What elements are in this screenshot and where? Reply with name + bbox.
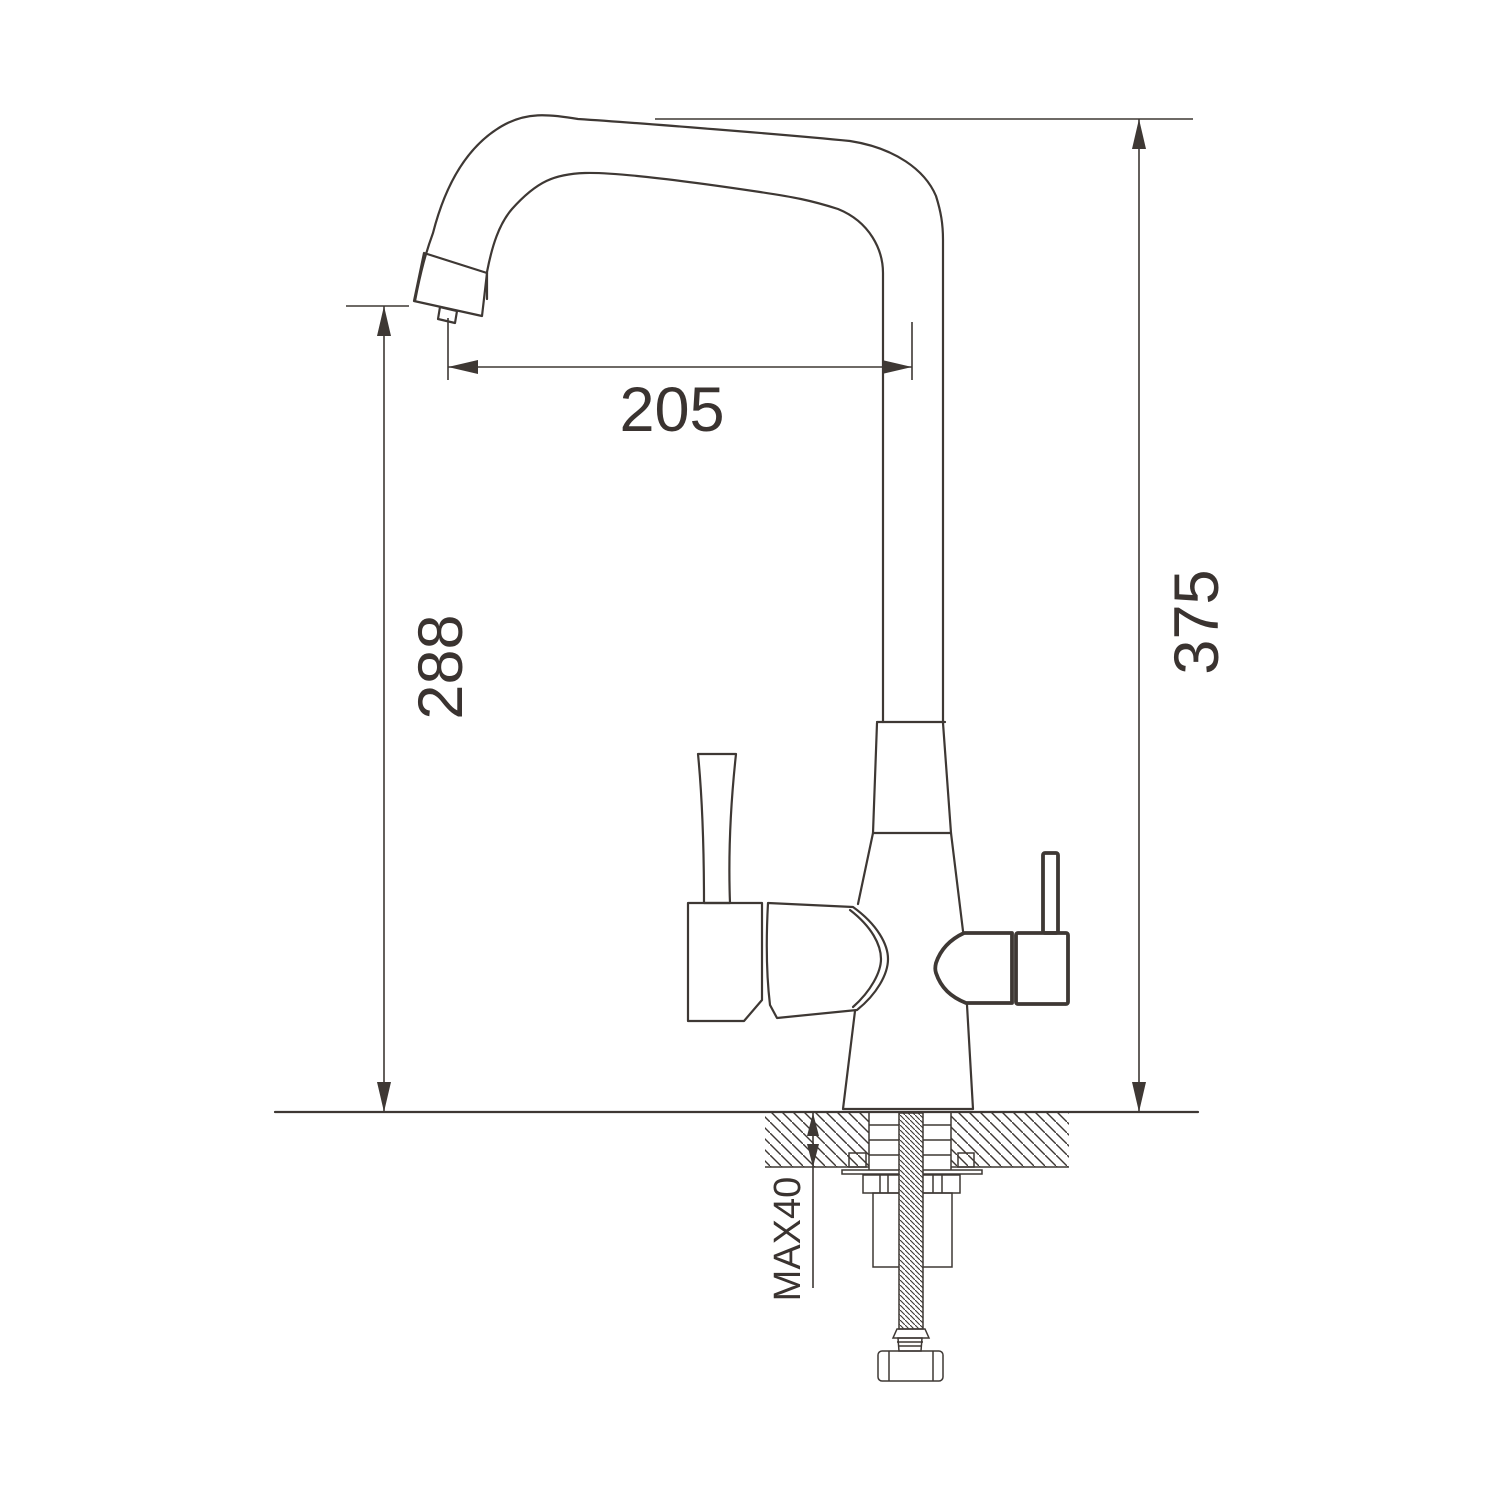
dim-205-extension-ticks (448, 318, 912, 380)
spout-inner-curve (487, 173, 883, 722)
body-transition (873, 722, 951, 833)
dim-288-label: 288 (406, 614, 476, 719)
filter-handle-stick (1043, 853, 1058, 933)
faucet-outline (414, 115, 1068, 1109)
dimension-spout-reach: 205 (448, 318, 912, 445)
dim-288-arrow-top (377, 306, 391, 336)
counter-hatch-left (765, 1113, 869, 1167)
threaded-rod (899, 1113, 923, 1329)
lever-cone-inner-arc (850, 910, 881, 1007)
lever-stick (698, 754, 736, 903)
dim-205-arrow-left (448, 360, 478, 374)
dimension-outlet-height: 288 (346, 306, 476, 1112)
spout-nozzle (414, 253, 487, 316)
filter-handle-body (1016, 933, 1068, 1004)
dim-375-label: 375 (1162, 569, 1232, 674)
dim-205-label: 205 (619, 375, 724, 445)
faucet-dimension-drawing: 205 288 375 MAX40 (0, 0, 1500, 1500)
dim-375-arrow-bottom (1132, 1082, 1146, 1112)
body-sides (843, 833, 973, 1109)
dim-max40-label: MAX40 (767, 1177, 809, 1302)
dim-288-arrow-bottom (377, 1082, 391, 1112)
counter-hatch-right (951, 1113, 1069, 1167)
rod-flare (893, 1329, 929, 1338)
rod-neck (897, 1338, 923, 1351)
dim-375-arrow-top (1132, 119, 1146, 149)
lever-base (688, 903, 762, 1021)
dim-205-arrow-right (882, 360, 912, 374)
bottom-nut (878, 1351, 943, 1381)
drawing-canvas: 205 288 375 MAX40 (0, 0, 1500, 1500)
filter-handle-cap (935, 933, 1012, 1003)
counter-and-mounting (275, 1112, 1198, 1381)
lever-cone (767, 903, 888, 1018)
